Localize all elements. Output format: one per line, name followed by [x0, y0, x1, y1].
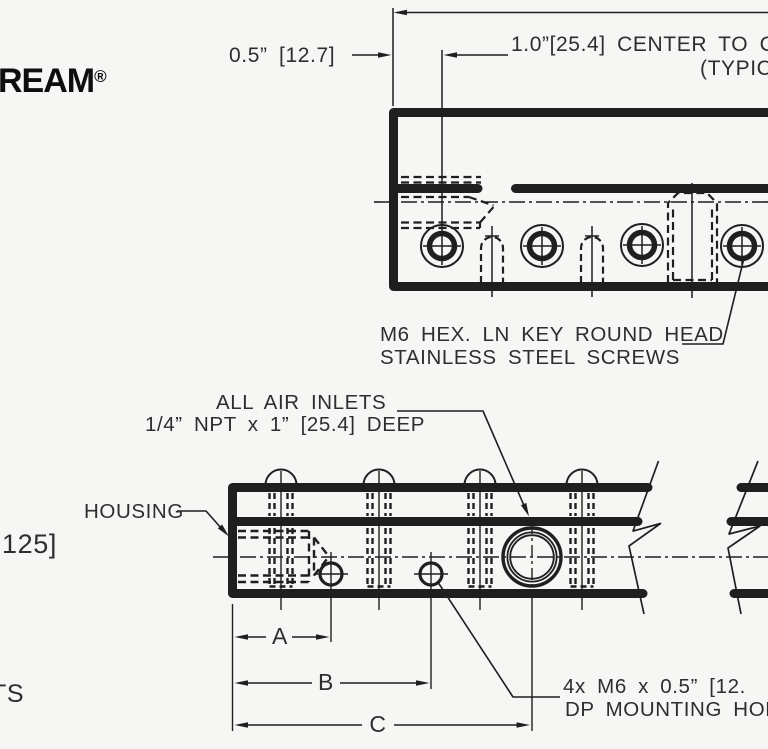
air-inlet-note-line1: ALL AIR INLETS: [216, 391, 386, 414]
technical-drawing-canvas: 0.5” [12.7] 1.0”[25.4] CENTER TO C (TYPI…: [0, 0, 768, 749]
air-inlet-note-line2: 1/4” NPT x 1” [25.4] DEEP: [145, 413, 425, 436]
mounting-hole-note-leader: [438, 582, 561, 698]
drawing-page: { "colors": { "background": "#f6f6f4", "…: [0, 0, 768, 749]
air-inlet-bosses: [266, 469, 598, 485]
front-air-inlet: [503, 522, 561, 731]
dim-c-arrow-right: [517, 722, 531, 727]
screw-note-line2: STAINLESS STEEL SCREWS: [380, 346, 680, 369]
center-to-center-typical-label: (TYPICA: [700, 57, 768, 80]
top-view: [374, 113, 768, 345]
housing-label: HOUSING: [84, 500, 184, 523]
dim-a-label: A: [272, 623, 288, 649]
cut-off-bottom-left-text: TS: [0, 680, 24, 708]
dim-b-label: B: [318, 669, 334, 695]
cut-off-left-dimension: 125]: [2, 529, 57, 559]
mounting-hole-note-line2: DP MOUNTING HOLE: [565, 698, 768, 721]
screw-note-line1: M6 HEX. LN KEY ROUND HEAD: [380, 323, 724, 346]
center-to-center-dim-arrow: [444, 52, 458, 58]
mounting-hole-centerlines: [314, 552, 448, 689]
dim-b-arrow-left: [235, 680, 249, 685]
dim-a-arrow-left: [235, 634, 249, 639]
dim-c-label: C: [369, 711, 386, 737]
dim-c-arrow-left: [235, 722, 249, 727]
air-inlet-leader-arrow: [521, 503, 529, 517]
dim-a-arrow-right: [316, 634, 330, 639]
overall-length-arrow: [394, 10, 408, 16]
mounting-hole-note-line1: 4x M6 x 0.5” [12.: [563, 675, 746, 698]
drawing-text: 0.5” [12.7] 1.0”[25.4] CENTER TO C (TYPI…: [0, 33, 768, 737]
offset-dimension-label: 0.5” [12.7]: [229, 44, 335, 67]
dim-b-arrow-right: [416, 680, 430, 685]
center-to-center-label: 1.0”[25.4] CENTER TO C: [511, 33, 768, 56]
offset-dim-arrow: [378, 52, 392, 58]
